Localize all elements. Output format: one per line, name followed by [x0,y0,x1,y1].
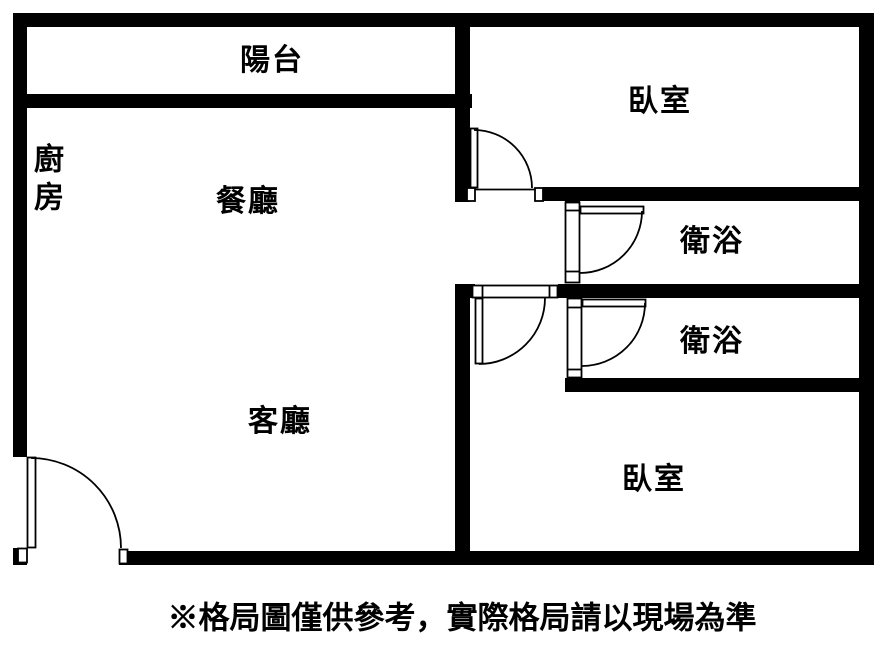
bath-lower-door-leaf [583,300,646,307]
wall-bath-lower-bottom [565,378,874,392]
floorplan-drawing [0,0,889,649]
room-label-dining: 餐廳 [216,187,280,217]
room-label-bath-lower: 衛浴 [680,327,744,357]
wall-bedroom-top-bottom [543,187,874,201]
wall-outer-bottom [119,551,874,565]
bath-upper-door-frame [566,203,580,283]
walls [13,13,874,565]
bedroom-top-door-leaf [471,129,478,188]
room-label-bedroom-bottom: 臥室 [622,465,686,495]
wall-bath-upper-left-top [565,187,580,203]
entry-jamb-right [120,550,128,564]
room-label-living: 客廳 [248,407,312,437]
wall-center-vertical-bottom [455,284,470,551]
room-label-kitchen: 廚房 [30,143,60,219]
lobby-door-leaf [476,299,483,364]
disclaimer-text: ※格局圖僅供參考，實際格局請以現場為準 [168,593,757,638]
room-label-balcony: 陽台 [240,46,304,76]
lobby-door-frame [473,286,558,298]
wall-outer-left [13,13,27,457]
wall-center-vertical-top [455,27,470,202]
lobby-door-swing-arc [479,298,545,364]
bedroom-top-jamb-left [467,188,475,201]
entry-jamb-left [18,549,27,563]
door-openings [18,188,582,564]
bath-upper-door-leaf [581,207,644,214]
entry-door-leaf [28,458,36,548]
bath-lower-door-swing-arc [582,303,645,366]
bedroom-top-jamb-right [535,188,543,201]
bath-upper-door-swing-arc [580,211,642,273]
wall-balcony [27,94,472,108]
entry-door-swing-arc [31,458,121,548]
wall-outer-top [13,13,874,27]
wall-between-baths-right [558,284,874,298]
room-label-bedroom-top: 臥室 [628,87,692,117]
bedroom-top-door-swing-arc [474,130,532,188]
floorplan-image: 陽台 廚房 餐廳 臥室 衛浴 衛浴 客廳 臥室 ※格局圖僅供參考，實際格局請以現… [0,0,889,649]
bath-lower-door-frame [568,299,582,378]
room-label-bath-upper: 衛浴 [680,227,744,257]
